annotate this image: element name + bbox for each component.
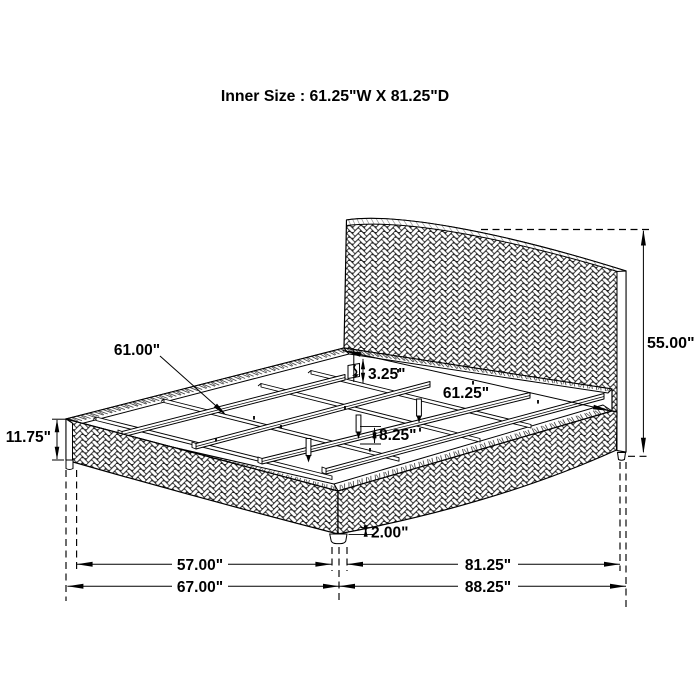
svg-text:81.25": 81.25" <box>465 557 511 574</box>
svg-text:Inner Size : 61.25"W X 81.25"D: Inner Size : 61.25"W X 81.25"D <box>221 88 449 105</box>
svg-text:8.25": 8.25" <box>379 427 417 444</box>
svg-text:57.00": 57.00" <box>177 557 223 574</box>
svg-text:67.00": 67.00" <box>177 579 223 596</box>
svg-text:11.75": 11.75" <box>6 429 51 446</box>
svg-text:61.25": 61.25" <box>443 385 489 402</box>
svg-text:88.25": 88.25" <box>465 579 511 596</box>
svg-text:55.00": 55.00" <box>647 335 695 352</box>
svg-text:61.00": 61.00" <box>114 342 160 359</box>
svg-text:3.25": 3.25" <box>368 366 406 383</box>
svg-text:2.00": 2.00" <box>371 525 409 542</box>
